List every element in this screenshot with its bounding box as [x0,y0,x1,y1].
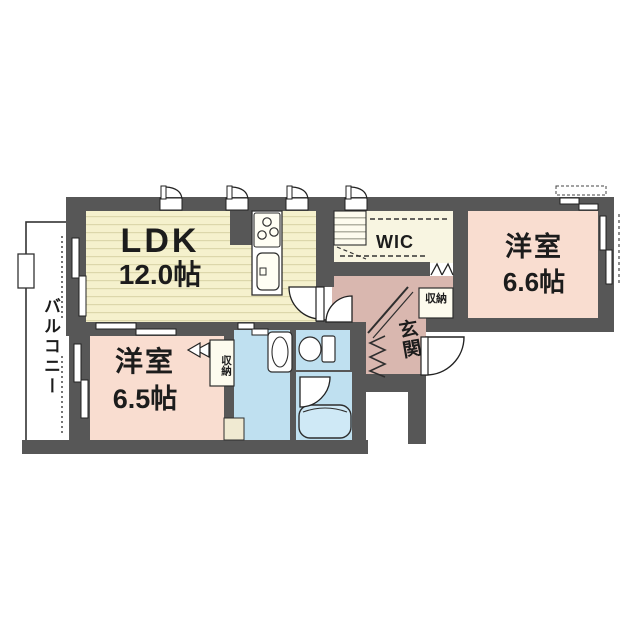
wic-room-label: WIC [368,233,422,252]
bathtub-icon [299,405,351,438]
ldk-room-size: 12.0帖 [96,260,224,289]
ldk-room-label: LDK [100,224,220,260]
wic-folding-door [430,263,453,275]
toilet-door [326,296,352,322]
bedroom-storage-label: 収納 [213,346,231,384]
pipe-space [224,418,244,440]
bedroom-right-floor [468,211,598,319]
entrance-storage-label: 収納 [419,294,453,306]
washbasin-icon [268,332,292,372]
floor-plan-drawing [0,0,639,640]
kitchen-counter [252,211,282,295]
toilet-icon [299,336,335,362]
balcony-label: バルコニー [31,277,59,417]
bedroom-left-label: 洋室 [98,347,192,376]
bedroom-left-size: 6.5帖 [94,385,196,413]
bedroom-right-label: 洋室 [488,233,580,261]
floor-plan-page: LDK 12.0帖 WIC 洋室 6.6帖 洋室 6.5帖 バルコニー 玄関 収… [0,0,639,640]
front-door [421,337,464,375]
eaves-outline-top [556,186,606,195]
bedroom-right-size: 6.6帖 [486,269,582,296]
shelf-cabinet [334,211,366,245]
